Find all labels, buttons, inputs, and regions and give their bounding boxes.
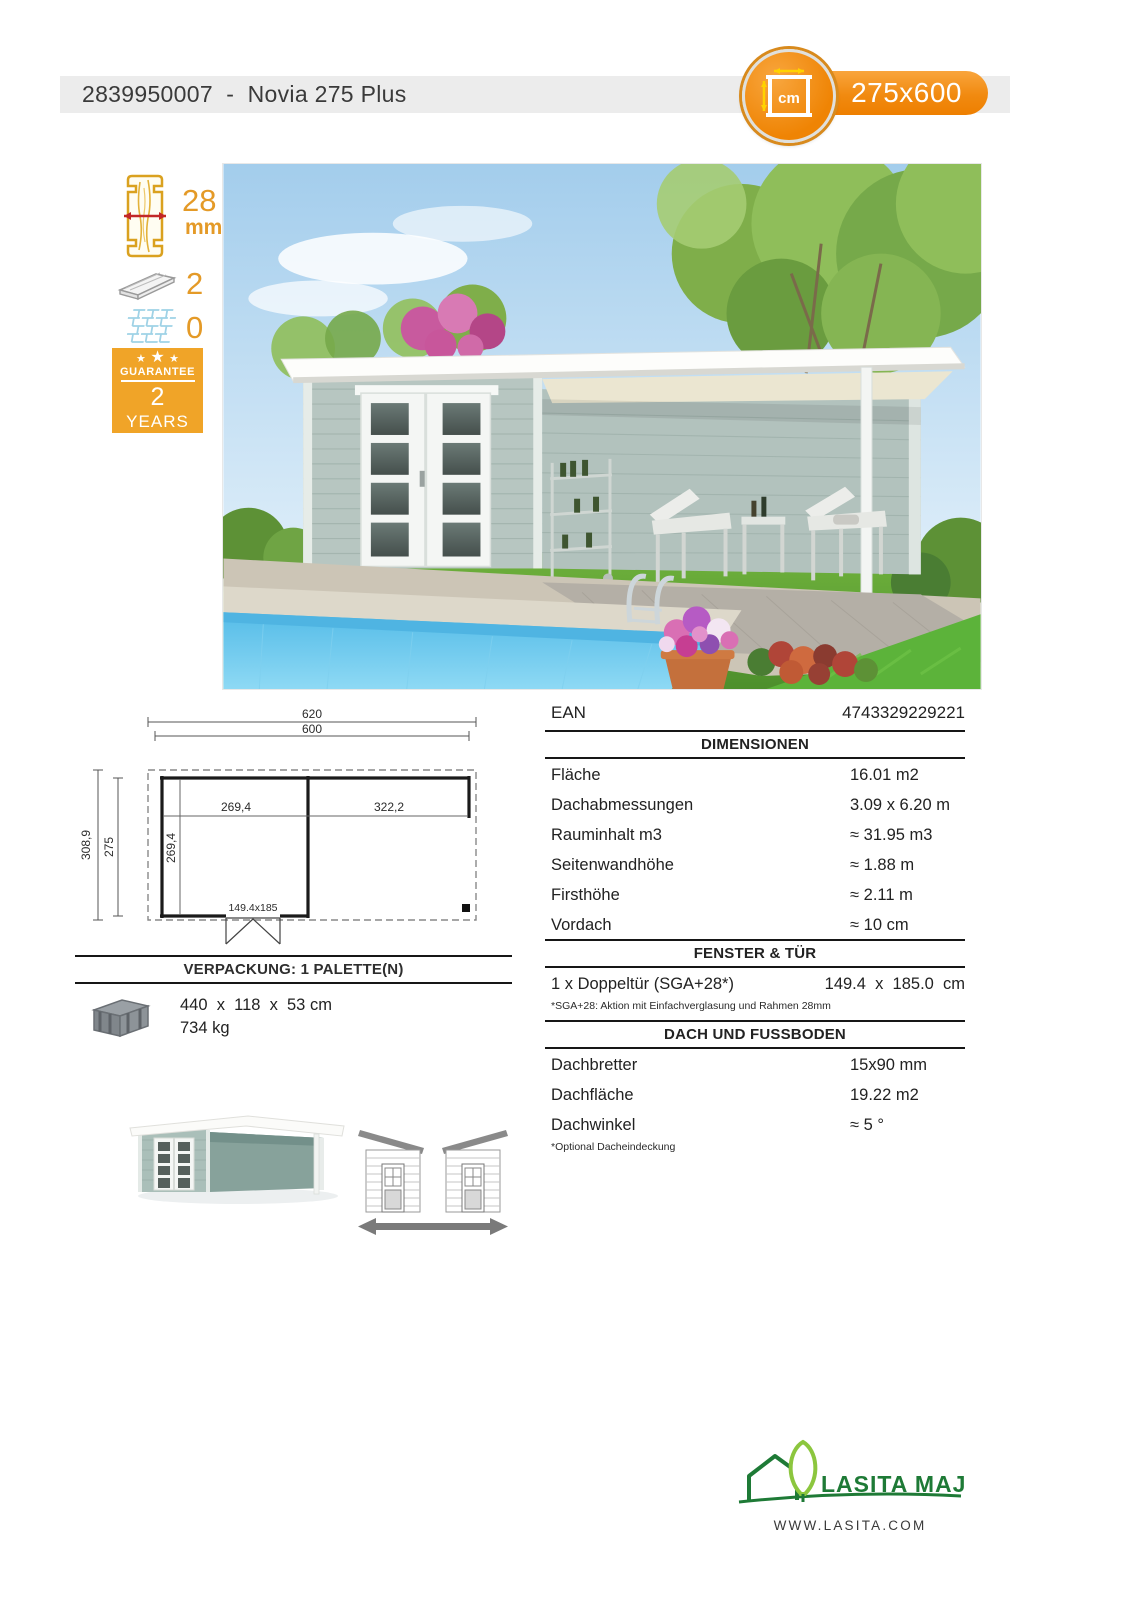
- packaging-title: VERPACKUNG: 1 PALETTE(N): [75, 955, 512, 984]
- packaging-info: 440 x 118 x 53 cm 734 kg: [88, 994, 332, 1042]
- spec-row: Firsthöhe≈ 2.11 m: [545, 879, 965, 909]
- spec-panel: EAN 4743329229221 DIMENSIONEN Fläche16.0…: [545, 700, 965, 1161]
- spec-row: Fläche16.01 m2: [545, 759, 965, 789]
- dim-total-width: 620: [302, 707, 322, 721]
- website-link[interactable]: WWW.LASITA.COM: [733, 1518, 967, 1533]
- shingles-packages-count: 0: [186, 310, 203, 346]
- roof-floor-boards-icon: [116, 264, 178, 302]
- reversible-roof-arrow: [358, 1218, 508, 1235]
- spec-row: Seitenwandhöhe≈ 1.88 m: [545, 849, 965, 879]
- dim-wall-depth: 275: [102, 837, 116, 857]
- spec-row: Vordach≈ 10 cm: [545, 909, 965, 939]
- section-title-roof-floor: DACH UND FUSSBODEN: [545, 1020, 965, 1049]
- guarantee-divider: [121, 380, 195, 382]
- brand-name: LASITA MAJA: [821, 1471, 967, 1497]
- ean-label: EAN: [551, 703, 842, 723]
- guarantee-years-unit: YEARS: [126, 412, 189, 432]
- packaging-dimensions: 440 x 118 x 53 cm: [180, 994, 332, 1017]
- spec-row: Dachabmessungen3.09 x 6.20 m: [545, 789, 965, 819]
- product-title: 2839950007 - Novia 275 Plus: [60, 81, 407, 108]
- ean-row: EAN 4743329229221: [545, 700, 965, 730]
- roof-floor-footnote: *Optional Dacheindeckung: [545, 1139, 965, 1161]
- spec-row: 1 x Doppeltür (SGA+28*)149.4 x 185.0 cm: [545, 968, 965, 998]
- sketch-house-right: [442, 1130, 508, 1212]
- wall-thickness-unit: mm: [185, 216, 222, 240]
- sketch-house-left: [358, 1130, 424, 1212]
- roof-direction-sketches: [358, 1116, 508, 1240]
- section-title-windows-doors: FENSTER & TÜR: [545, 939, 965, 968]
- product-photo: [222, 163, 982, 690]
- dim-terrace-width: 322,2: [374, 800, 404, 814]
- ean-value: 4743329229221: [842, 703, 965, 723]
- guarantee-badge: ★ ★ ★ GUARANTEE 2 YEARS: [112, 348, 203, 433]
- spec-row: Dachfläche19.22 m2: [545, 1079, 965, 1109]
- guarantee-stars: ★ ★ ★: [136, 351, 179, 366]
- dim-total-depth: 308,9: [79, 830, 93, 860]
- guarantee-years-value: 2: [151, 383, 165, 412]
- guarantee-label: GUARANTEE: [120, 366, 195, 378]
- packaging-text: 440 x 118 x 53 cm 734 kg: [180, 994, 332, 1040]
- wall-thickness-icon: [118, 168, 172, 264]
- pallet-icon: [88, 994, 152, 1042]
- windows-doors-footnote: *SGA+28: Aktion mit Einfachverglasung un…: [545, 998, 965, 1020]
- dim-room-depth: 269,4: [164, 833, 178, 863]
- roof-floor-packages-count: 2: [186, 266, 203, 302]
- section-title-dimensions: DIMENSIONEN: [545, 730, 965, 759]
- size-badge-value: 275x600: [851, 77, 962, 109]
- spec-row: Rauminhalt m3≈ 31.95 m3: [545, 819, 965, 849]
- wall-thickness-value: 28: [182, 183, 216, 219]
- spec-row: Dachbretter15x90 mm: [545, 1049, 965, 1079]
- cm-label: cm: [778, 90, 800, 107]
- packaging-weight: 734 kg: [180, 1017, 332, 1040]
- size-badge-circle: cm: [742, 49, 836, 143]
- door-size-label: 149.4x185: [228, 902, 277, 914]
- dim-room-width: 269,4: [221, 800, 251, 814]
- brand-logo: LASITA MAJA: [733, 1432, 967, 1514]
- spec-row: Dachwinkel≈ 5 °: [545, 1109, 965, 1139]
- dim-wall-width: 600: [302, 722, 322, 736]
- floor-plan-drawing: 620 600 308,9 275 269,4 322,2 269,4 149.…: [76, 698, 512, 946]
- cm-measure-icon: cm: [758, 65, 820, 127]
- product-render: [128, 1098, 348, 1208]
- photo-shed: [281, 347, 964, 594]
- shingles-icon: [120, 306, 178, 348]
- datasheet-page: 2839950007 - Novia 275 Plus 275x600 cm 2…: [0, 0, 1130, 1600]
